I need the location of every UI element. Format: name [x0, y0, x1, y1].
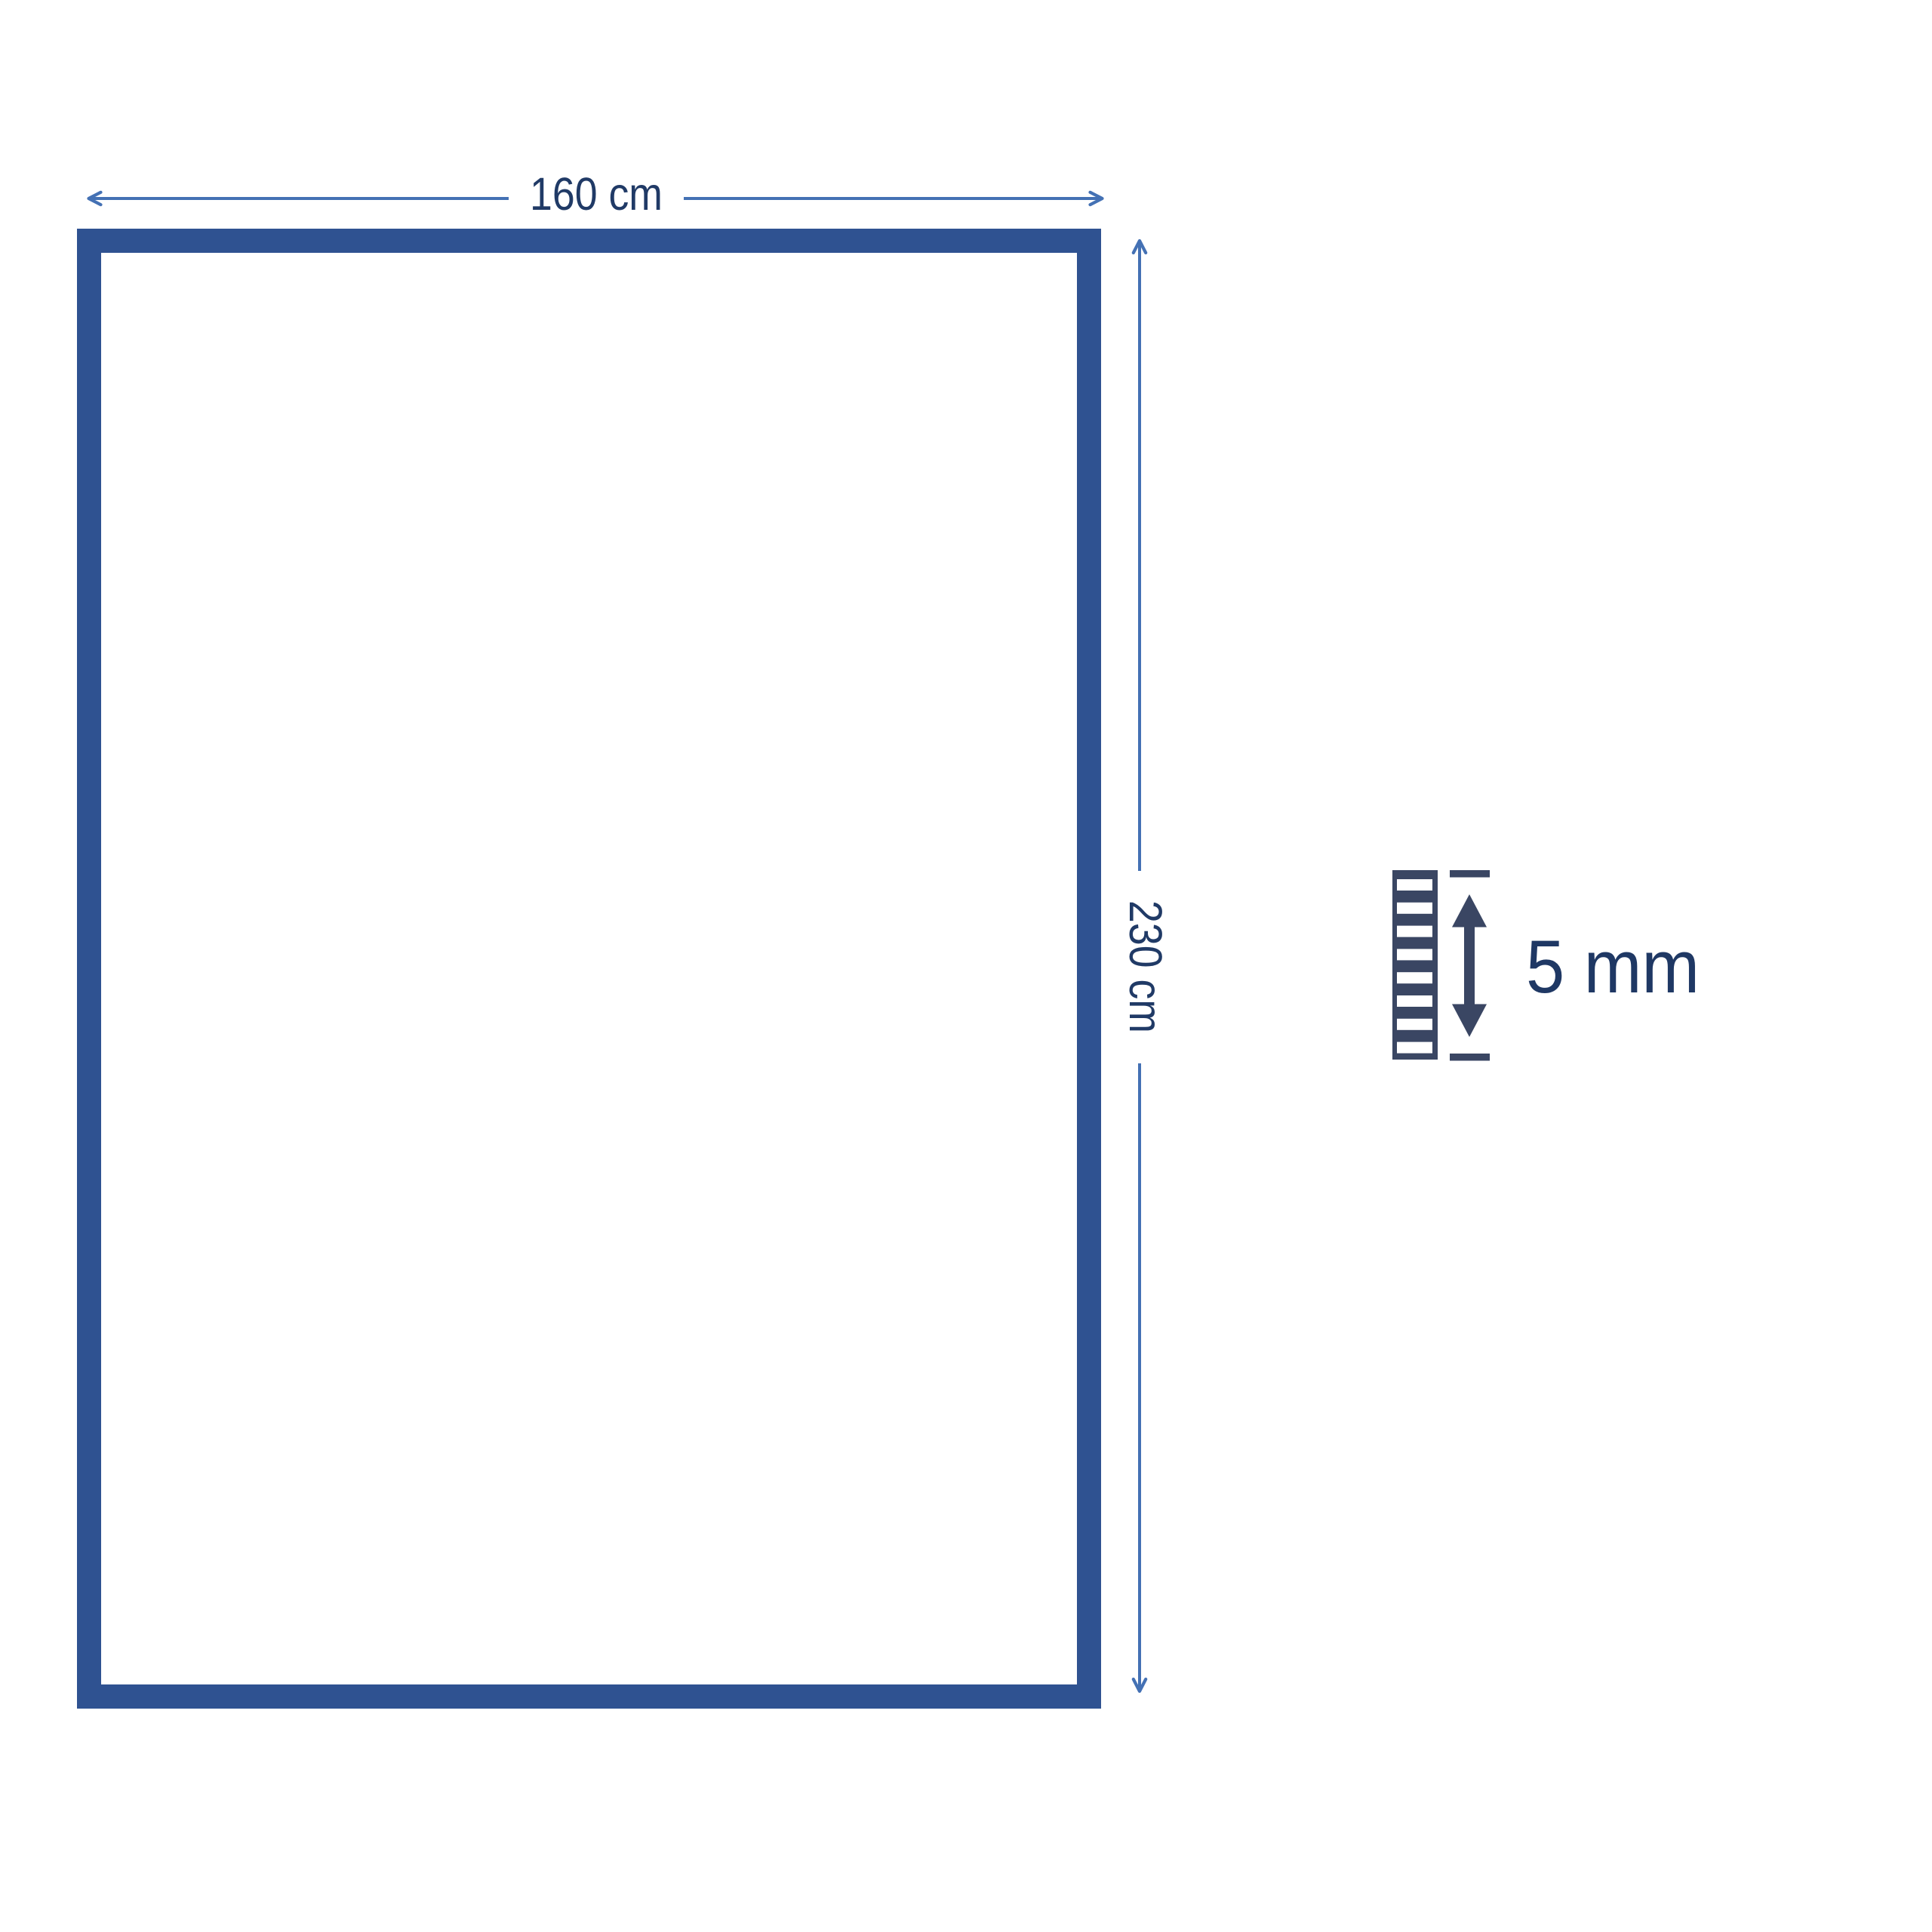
svg-text:5 mm: 5 mm: [1526, 924, 1700, 1008]
svg-text:230 cm: 230 cm: [1120, 900, 1171, 1033]
svg-text:160 cm: 160 cm: [530, 168, 663, 220]
